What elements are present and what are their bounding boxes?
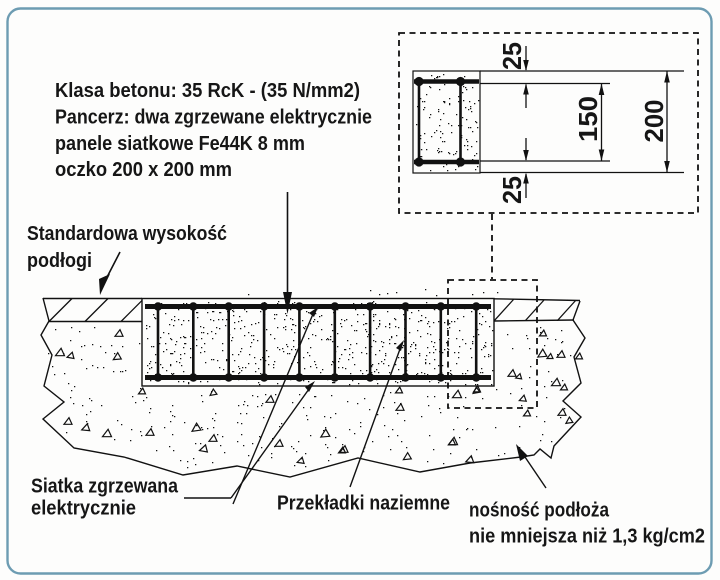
svg-text:25: 25 bbox=[497, 42, 527, 70]
svg-text:150: 150 bbox=[573, 96, 603, 142]
svg-text:elektrycznie: elektrycznie bbox=[31, 498, 136, 520]
svg-text:podłogi: podłogi bbox=[27, 250, 92, 272]
svg-text:Siatka zgrzewana: Siatka zgrzewana bbox=[31, 476, 179, 498]
svg-text:oczko 200 x 200 mm: oczko 200 x 200 mm bbox=[55, 159, 232, 181]
svg-text:Pancerz: dwa zgrzewane elektry: Pancerz: dwa zgrzewane elektrycznie bbox=[55, 107, 372, 129]
svg-text:25: 25 bbox=[497, 176, 527, 204]
svg-text:panele siatkowe Fe44K 8 mm: panele siatkowe Fe44K 8 mm bbox=[55, 133, 305, 155]
svg-text:nośność podłoża: nośność podłoża bbox=[469, 500, 610, 522]
svg-text:nie mniejsza niż 1,3 kg/cm2: nie mniejsza niż 1,3 kg/cm2 bbox=[469, 526, 705, 548]
svg-text:Klasa betonu: 35 RcK - (35 N/m: Klasa betonu: 35 RcK - (35 N/mm2) bbox=[55, 80, 360, 102]
svg-text:Przekładki naziemne: Przekładki naziemne bbox=[277, 493, 450, 515]
svg-text:Standardowa wysokość: Standardowa wysokość bbox=[27, 223, 227, 245]
svg-text:200: 200 bbox=[639, 100, 669, 143]
